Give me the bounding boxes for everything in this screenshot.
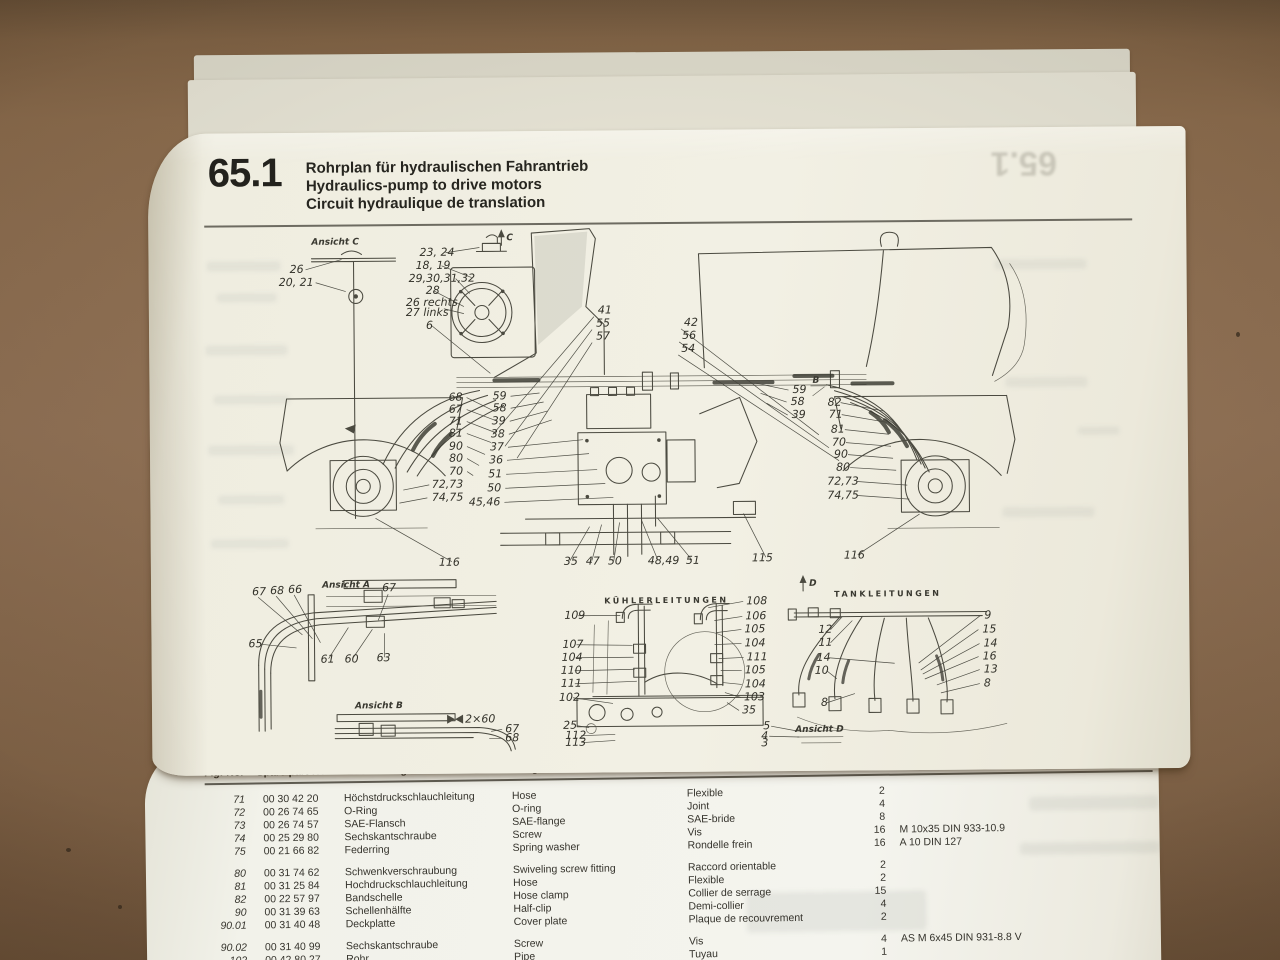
table-cell: 00 30 42 20 (257, 792, 342, 806)
table-cell: 80 (206, 867, 258, 881)
part-number-label: 110 (561, 664, 582, 677)
table-cell: Pipe (512, 948, 687, 960)
table-cell: 00 42 80 27 (259, 953, 344, 960)
table-cell: 00 31 74 62 (258, 866, 343, 880)
view-caption: TANKLEITUNGEN (834, 589, 941, 599)
part-number-label: 14 (983, 636, 997, 649)
part-number-label: 67 (382, 581, 396, 594)
part-number-label: 20, 21 (279, 276, 314, 289)
table-group: 8000 31 74 62SchwenkverschraubungSwiveli… (206, 855, 1155, 933)
part-number-label: 66 (288, 583, 302, 596)
part-number-label: 37 (490, 440, 504, 453)
part-number-label: 10 (815, 664, 829, 677)
view-caption: Ansicht B (354, 701, 403, 711)
view-caption: C (506, 233, 513, 243)
part-number-label: 57 (596, 329, 610, 342)
table-cell: 102 (207, 954, 259, 960)
part-number-label: 80 (449, 452, 463, 465)
part-number-label: 14 (817, 651, 831, 664)
main-view-drawing (278, 225, 1028, 595)
part-number-label: 2×60 (465, 712, 495, 725)
part-number-label: 63 (377, 651, 391, 664)
part-number-label: 35 (564, 555, 578, 568)
part-number-label: 61 (321, 653, 335, 666)
dust-speck (1236, 332, 1240, 337)
view-caption: D (809, 579, 817, 589)
table-cell: 00 25 29 80 (257, 831, 342, 845)
table-cell (1039, 907, 1155, 922)
table-cell: 8 (863, 810, 897, 823)
part-number-label: 56 (682, 329, 696, 342)
part-number-label: 50 (608, 554, 622, 567)
table-cell: Rohr (344, 950, 512, 960)
part-number-label: 27 links (406, 306, 449, 319)
table-cell: 15 (864, 884, 898, 897)
part-number-label: 13 (984, 662, 998, 675)
part-number-label: 111 (561, 677, 582, 690)
table-cell: 74 (205, 832, 257, 846)
part-number-label: 103 (744, 690, 765, 703)
table-cell (1039, 954, 1155, 960)
table-cell: 00 26 74 65 (257, 805, 342, 819)
table-cell: Spring washer (511, 839, 686, 854)
view-caption: Ansicht D (794, 725, 844, 735)
part-number-label: 116 (439, 556, 460, 569)
table-cell: 81 (206, 880, 258, 894)
table-cell (1037, 833, 1153, 848)
part-number-label: 104 (744, 636, 765, 649)
leader-lines (255, 244, 981, 746)
part-number-label: 105 (744, 622, 765, 635)
part-number-label: 107 (562, 638, 583, 651)
part-number-label: 60 (345, 652, 359, 665)
part-number-label: 39 (792, 408, 806, 421)
part-number-label: 58 (493, 401, 507, 414)
table-cell: 82 (206, 893, 258, 907)
table-cell: 71 (205, 793, 257, 807)
part-number-label: 55 (596, 316, 610, 329)
table-cell: A 10 DIN 127 (897, 834, 1037, 849)
part-number-label: 54 (681, 342, 695, 355)
table-cell: 4 (865, 932, 899, 945)
table-body: 7100 30 42 20HöchstdruckschlauchleitungH… (205, 772, 1156, 960)
table-cell: 00 31 40 48 (259, 918, 344, 932)
part-number-label: 26 (290, 263, 304, 276)
show-through-page-number: 65.1 (954, 143, 1094, 183)
part-number-label: 11 (818, 636, 832, 649)
part-number-label: 102 (559, 691, 580, 704)
part-number-label: 41 (598, 303, 612, 316)
part-number-label: 81 (449, 427, 463, 440)
table-cell: 00 22 57 97 (258, 892, 343, 906)
part-number-label: 68 (270, 584, 284, 597)
part-number-label: 104 (745, 677, 766, 690)
part-number-label: 74,75 (827, 489, 859, 502)
view-caption: Ansicht C (310, 237, 359, 247)
part-number-label: 48,49 (648, 554, 680, 567)
part-number-label: 111 (747, 650, 768, 663)
table-cell: 4 (864, 897, 898, 910)
table-cell: 2 (864, 871, 898, 884)
part-number-label: 67 (252, 585, 266, 598)
part-number-label: 42 (684, 316, 698, 329)
part-number-label: 81 (831, 423, 845, 436)
part-number-label: 108 (746, 594, 767, 607)
part-number-label: 106 (745, 609, 766, 622)
part-number-label: 113 (565, 736, 586, 749)
part-number-label: 6 (426, 319, 433, 332)
diagram-page: 65.1 Rohrplan für hydraulischen Fahrantr… (147, 126, 1190, 776)
part-number-label: 45,46 (469, 495, 501, 508)
part-number-label: 38 (491, 427, 505, 440)
table-cell: 75 (206, 845, 258, 859)
part-number-label: 72,73 (432, 478, 464, 491)
part-number-label: 23, 24 (419, 246, 454, 259)
table-group: 90.0200 31 40 99SechskantschraubeScrewVi… (207, 928, 1155, 960)
table-cell: 90.02 (207, 941, 259, 955)
dust-speck (118, 905, 122, 909)
table-cell: 72 (205, 806, 257, 820)
table-cell: 73 (205, 819, 257, 833)
photo-of-manual-page: Bild-Nr.Fig.-No.Ersatzteil-Nr.Spare part… (0, 0, 1280, 960)
part-number-label: 105 (745, 663, 766, 676)
table-cell: Federring (343, 841, 511, 856)
part-number-label: 90 (834, 448, 848, 461)
table-cell: 00 26 74 57 (257, 818, 342, 832)
part-number-label: 116 (844, 548, 865, 561)
part-number-label: 104 (562, 651, 583, 664)
part-number-label: 15 (982, 622, 996, 635)
part-number-label: 50 (487, 481, 501, 494)
table-group: 7100 30 42 20HöchstdruckschlauchleitungH… (205, 781, 1154, 859)
part-number-label: 51 (488, 467, 502, 480)
part-number-label: 12 (818, 623, 832, 636)
table-cell: 4 (863, 797, 897, 810)
part-number-label: 74,75 (432, 491, 464, 504)
page-title: Rohrplan für hydraulischen Fahrantrieb H… (306, 158, 589, 214)
view-caption: B (812, 376, 819, 386)
table-cell: Plaque de recouvrement (687, 911, 865, 926)
part-number-label: 39 (492, 414, 506, 427)
table-cell: 00 31 40 99 (259, 940, 344, 954)
part-number-label: 51 (686, 554, 700, 567)
hydraulics-diagram: 2620, 2123, 2418, 1929,30,31,322826 rech… (193, 222, 1162, 754)
table-cell: 2 (864, 858, 898, 871)
table-cell: 00 21 66 82 (258, 844, 343, 858)
dust-speck (66, 848, 71, 852)
table-cell: 1 (865, 945, 899, 958)
table-cell: Deckplatte (344, 915, 512, 930)
part-number-label: 3 (761, 736, 768, 749)
part-number-label: 71 (829, 408, 843, 421)
table-cell: 00 31 25 84 (258, 879, 343, 893)
part-number-label: 47 (586, 555, 600, 568)
title-french: Circuit hydraulique de translation (306, 194, 589, 214)
part-number-label: 29,30,31,32 (409, 272, 476, 286)
part-number-label: 18, 19 (415, 259, 450, 272)
part-number-label: 68 (505, 731, 519, 744)
part-number-label: 16 (983, 649, 997, 662)
part-number-label: 9 (984, 608, 991, 621)
part-number-label: 80 (836, 461, 850, 474)
table-cell: 90.01 (207, 919, 259, 933)
part-number-label: 35 (742, 703, 756, 716)
part-number-label: 115 (752, 551, 773, 564)
view-caption: Ansicht A (321, 580, 370, 590)
view-caption: KÜHLERLEITUNGEN (604, 595, 728, 606)
part-number-label: 58 (791, 395, 805, 408)
table-cell: 16 (863, 823, 897, 836)
part-number-label: 8 (984, 676, 991, 689)
title-german: Rohrplan für hydraulischen Fahrantrieb (306, 158, 589, 178)
table-cell: 16 (863, 836, 897, 849)
table-cell: Rondelle frein (686, 837, 864, 852)
table-cell: Cover plate (512, 913, 687, 928)
section-number: 65.1 (208, 151, 282, 197)
table-cell: 2 (865, 910, 899, 923)
part-number-label: 72,73 (827, 475, 859, 488)
title-english: Hydraulics-pump to drive motors (306, 176, 589, 196)
table-cell: 90 (206, 906, 258, 920)
table-cell (899, 908, 1039, 923)
table-cell: 2 (863, 784, 897, 797)
table-cell: 00 31 39 63 (258, 905, 343, 919)
part-number-label: 109 (564, 609, 585, 622)
table-cell: Tuyau (687, 946, 865, 960)
part-number-label: 36 (489, 453, 503, 466)
part-number-label: 70 (449, 465, 463, 478)
part-number-label: 8 (821, 696, 828, 709)
part-number-label: 65 (248, 637, 262, 650)
